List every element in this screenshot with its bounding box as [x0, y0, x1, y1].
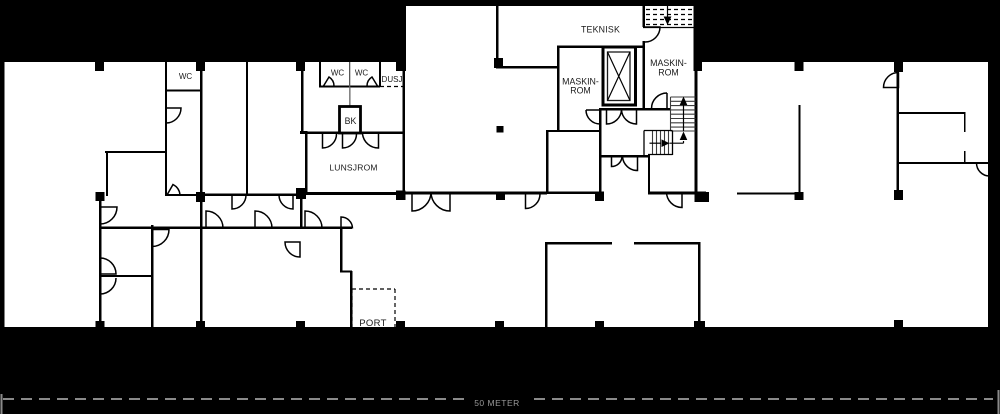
svg-text:WC: WC — [179, 72, 193, 81]
svg-text:DUSJ: DUSJ — [382, 75, 403, 84]
svg-text:WC: WC — [355, 69, 369, 78]
svg-text:50 METER: 50 METER — [474, 398, 520, 408]
svg-text:LUNSJROM: LUNSJROM — [329, 163, 377, 173]
svg-text:ROM: ROM — [658, 68, 679, 78]
svg-text:MASKIN-: MASKIN- — [650, 58, 687, 68]
svg-text:TEKNISK: TEKNISK — [581, 25, 620, 35]
svg-text:BK: BK — [345, 116, 357, 126]
svg-text:PORT: PORT — [359, 318, 386, 329]
svg-text:ROM: ROM — [570, 86, 591, 96]
svg-text:WC: WC — [331, 69, 345, 78]
